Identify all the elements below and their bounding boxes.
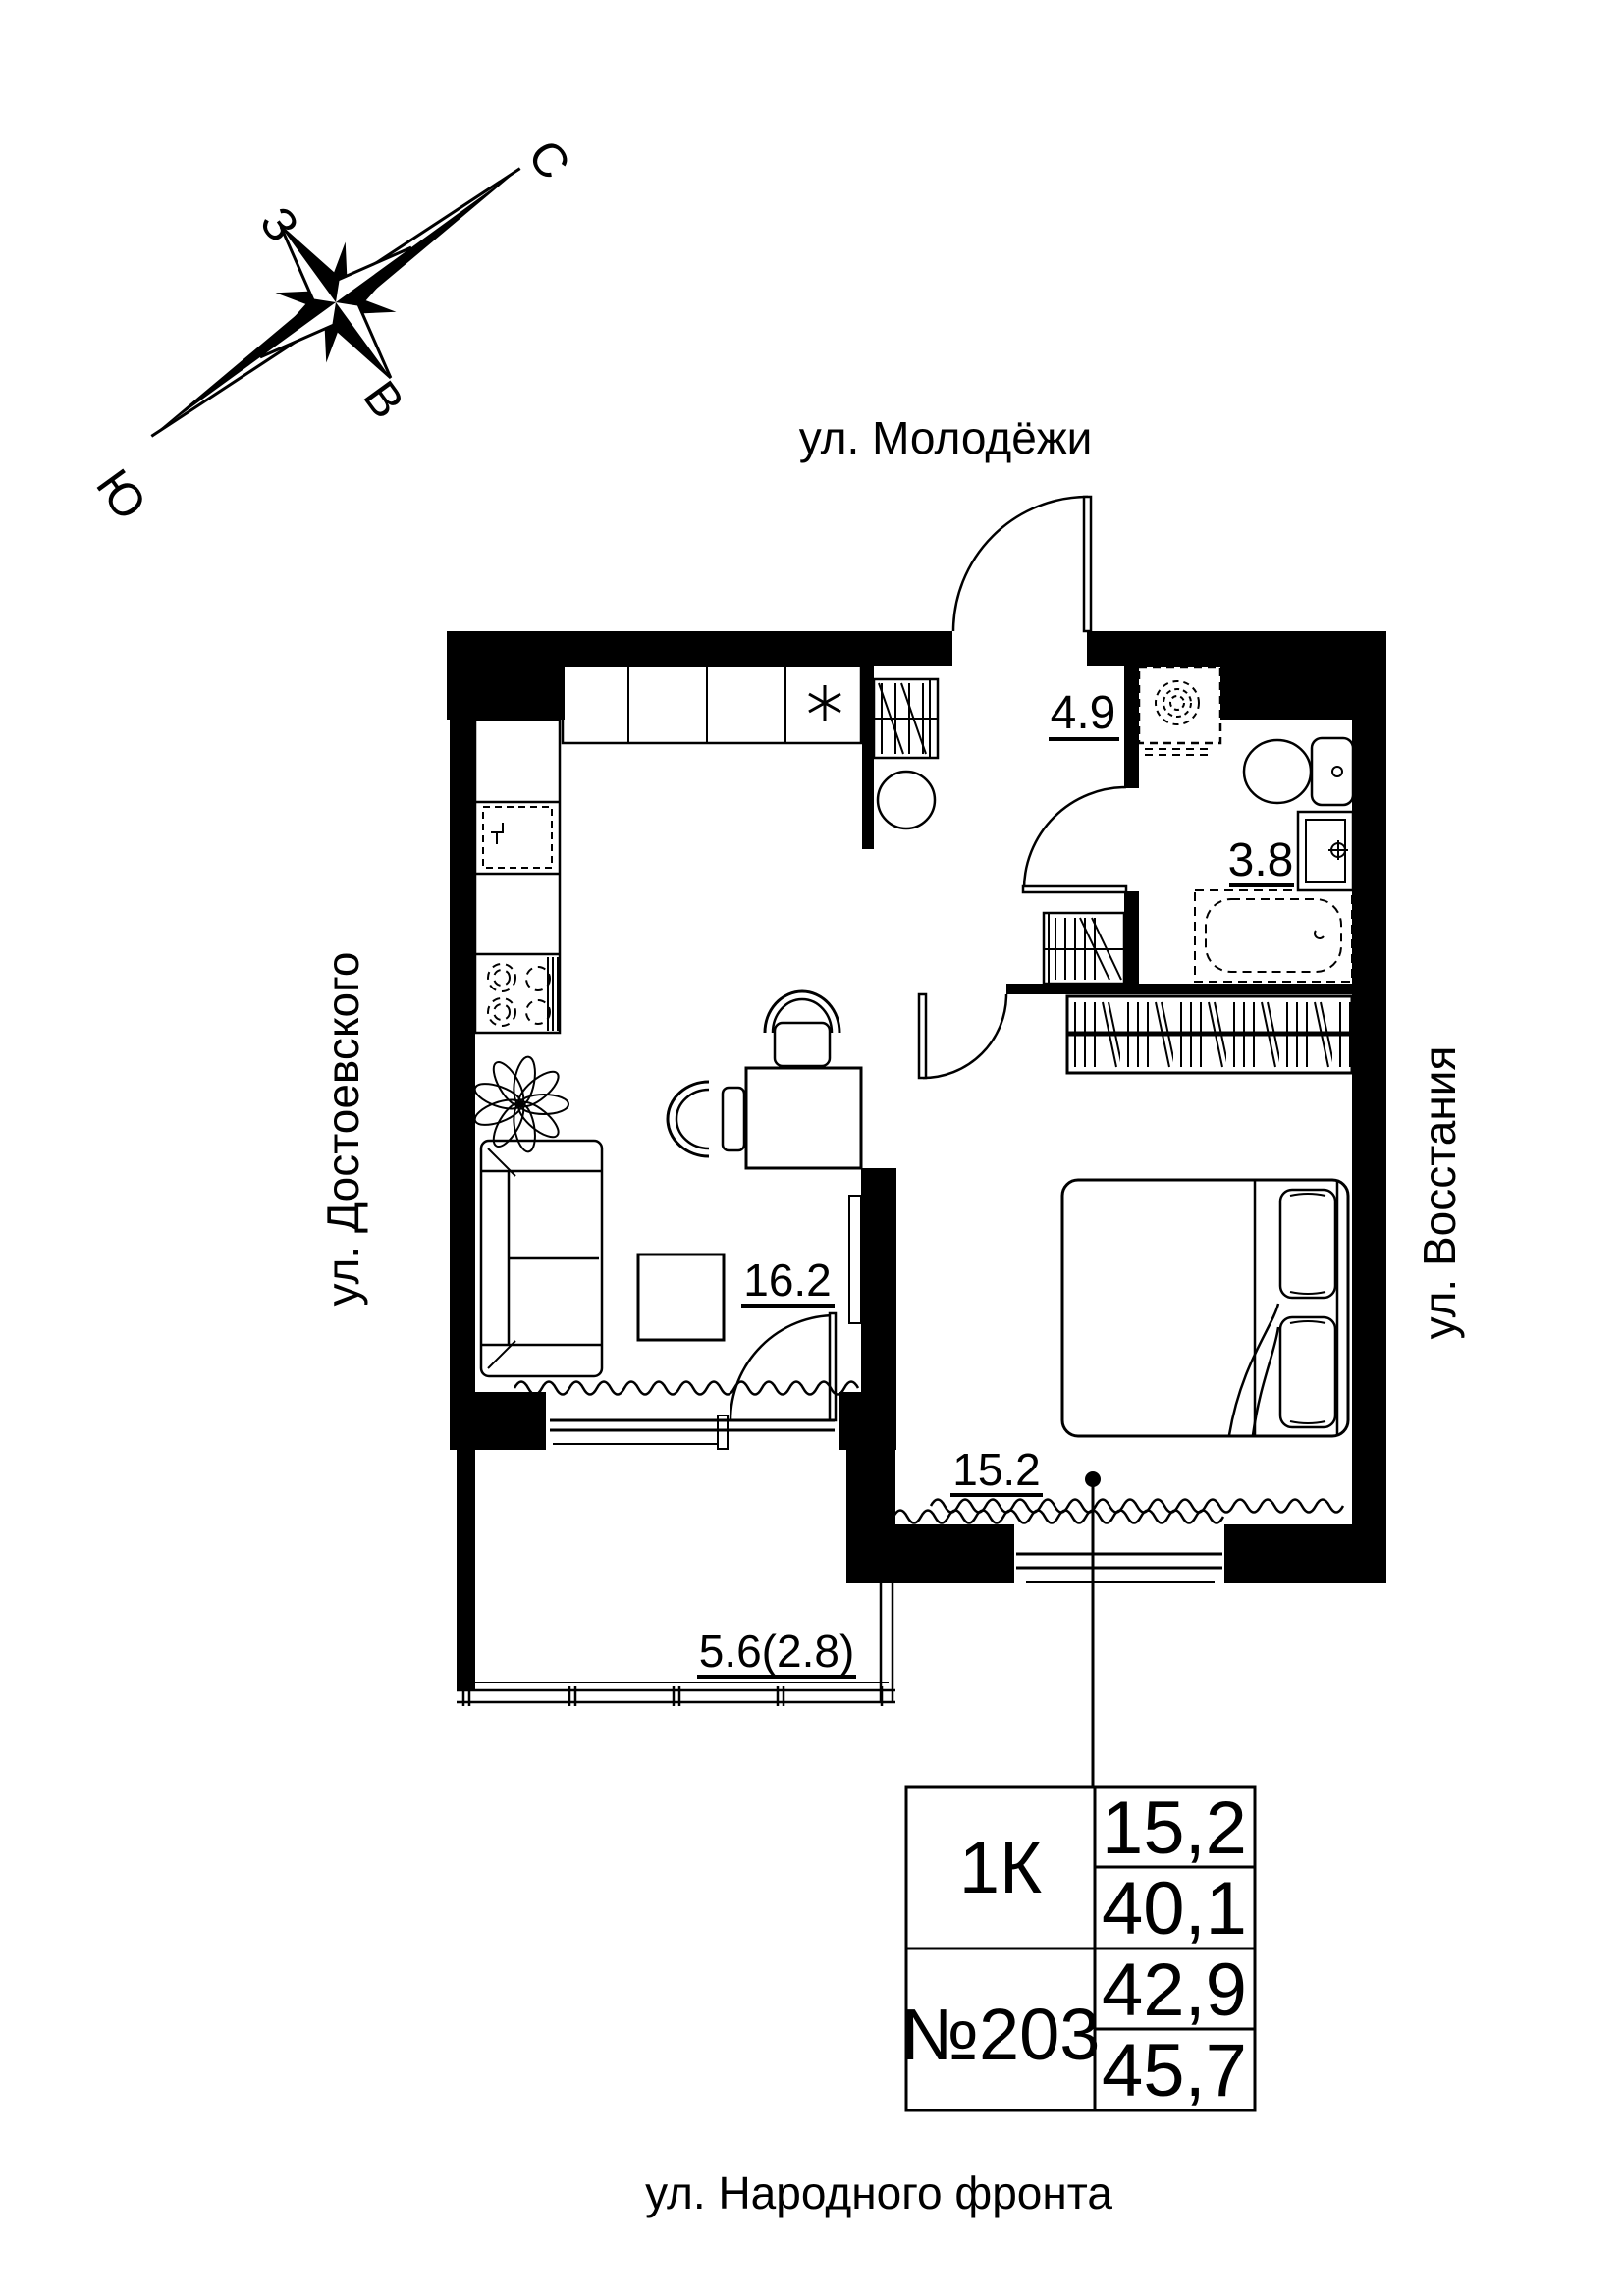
bedroom: 15.2 <box>893 996 1352 1582</box>
compass-rose: С Ю З В <box>18 47 636 585</box>
kitchen-faucet-icon <box>491 823 503 844</box>
wall-bath-left-lower <box>1124 891 1139 984</box>
living-room: 16.2 <box>472 991 883 1449</box>
street-label-left: ул. Достоевского <box>317 952 368 1307</box>
bed <box>1062 1180 1348 1436</box>
living-door-leaf <box>1023 886 1126 892</box>
shower-threshold <box>1145 749 1214 755</box>
wall-bath-bedroom-divider <box>1006 984 1352 994</box>
living-radiator <box>514 1382 858 1395</box>
street-label-right: ул. Восстания <box>1414 1046 1465 1340</box>
compass-main-star <box>205 172 465 432</box>
chair-left-seat <box>723 1088 744 1150</box>
bedroom-window-glazing <box>1016 1554 1222 1568</box>
entrance-door-leaf <box>1084 497 1091 631</box>
wall-top-c <box>1126 631 1220 667</box>
bedroom-door-leaf <box>919 994 926 1078</box>
fridge-asterisk-icon <box>809 685 840 721</box>
sofa <box>481 1141 602 1376</box>
dining-table <box>746 1068 861 1168</box>
living-door-arc <box>1024 787 1126 889</box>
wall-bath-left-upper <box>1124 666 1139 788</box>
shower-drain-spiral-2 <box>1163 689 1191 717</box>
street-label-bottom: ул. Народного фронта <box>645 2167 1112 2218</box>
apartment-number: №203 <box>901 1994 1101 2075</box>
bedroom-door-arc <box>923 994 1006 1078</box>
bathtub-drain <box>1315 931 1324 938</box>
chair-left <box>668 1082 744 1156</box>
hob-burner-3 <box>488 998 515 1026</box>
room-label-bedroom: 15.2 <box>952 1444 1041 1495</box>
hall: 4.9 <box>1044 687 1124 984</box>
toilet-icon <box>1244 740 1311 803</box>
balcony-railing-right <box>881 1583 893 1702</box>
bathtub-inner <box>1206 899 1341 972</box>
chair-top <box>765 991 839 1066</box>
area-value-total: 42,9 <box>1102 1949 1247 2032</box>
shower-drain-spiral-1 <box>1170 696 1184 710</box>
balcony-railing <box>457 1690 895 1702</box>
balcony-door-leaf <box>830 1313 836 1420</box>
wall-bedroom-bottom-left <box>884 1524 1014 1583</box>
wall-left <box>450 720 475 1450</box>
bed-pillow-2 <box>1280 1317 1335 1427</box>
kitchen-sink <box>483 807 552 868</box>
compass-label-east: В <box>352 372 413 428</box>
bedroom-radiator-upper <box>931 1500 1343 1513</box>
room-label-balcony: 5.6(2.8) <box>699 1626 855 1677</box>
room-label-hall: 4.9 <box>1051 687 1116 739</box>
wall-bedroom-bottom-right <box>1224 1524 1386 1583</box>
wall-kitchen-pier <box>862 666 874 849</box>
area-value-total-balcony: 45,7 <box>1102 2029 1247 2112</box>
plant-icon <box>472 1055 568 1153</box>
apartment-type: 1К <box>959 1827 1042 1908</box>
wall-top-left-corner <box>447 631 565 720</box>
living-window-glazing <box>550 1420 835 1430</box>
vent-shaft-lines <box>874 679 938 758</box>
wall-right <box>1352 631 1386 1583</box>
compass-label-north: С <box>517 131 579 188</box>
hob-burner-4 <box>526 1000 550 1024</box>
column-circle <box>878 772 935 828</box>
wall-top-a <box>565 631 952 666</box>
compass-label-south: Ю <box>85 460 155 529</box>
chair-left-back-outer <box>668 1082 709 1156</box>
kitchen-cabinet-dividers <box>628 666 785 743</box>
balcony: 5.6(2.8) <box>457 1583 895 1706</box>
chair-top-seat <box>775 1023 830 1066</box>
floorplan-canvas: С Ю З В ул. Молодёжи ул. Достоевского ул… <box>0 0 1623 2296</box>
bed-pillow-1 <box>1280 1190 1335 1298</box>
shower-area <box>1139 667 1220 743</box>
tv-living <box>849 1196 861 1323</box>
street-label-top: ул. Молодёжи <box>799 412 1093 463</box>
hall-closet-lines <box>1044 913 1124 984</box>
coffee-table <box>638 1255 724 1340</box>
hob-edge-hatch <box>548 957 558 1031</box>
wall-top-b <box>1087 631 1126 666</box>
area-value-living: 15,2 <box>1102 1787 1247 1870</box>
area-value-usable: 40,1 <box>1102 1867 1247 1950</box>
room-label-living: 16.2 <box>743 1255 832 1306</box>
wall-living-bedroom-divider <box>861 1168 896 1392</box>
room-label-bathroom: 3.8 <box>1228 834 1294 886</box>
hob-burner-2 <box>526 967 550 990</box>
hob-burner-3-inner <box>494 1004 510 1020</box>
entrance-door-arc <box>953 497 1088 631</box>
balcony-door-arc <box>730 1315 836 1420</box>
chair-left-back-inner <box>676 1090 709 1148</box>
kitchen-cabinet-row <box>563 666 861 743</box>
shower-drain-spiral-3 <box>1156 681 1199 724</box>
hob-burner-1-inner <box>494 970 510 986</box>
hob-burner-1 <box>488 964 515 991</box>
wall-balcony-left <box>457 1426 475 1690</box>
kitchen-counter-dividers <box>475 802 560 954</box>
